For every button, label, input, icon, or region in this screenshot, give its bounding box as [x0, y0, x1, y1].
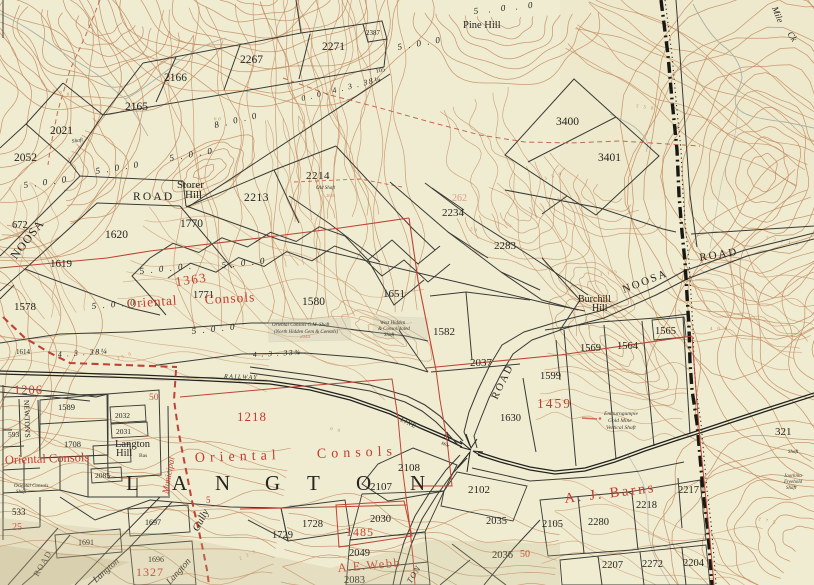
svg-text:1569: 1569	[580, 343, 601, 354]
svg-text:Consols: Consols	[317, 444, 398, 462]
svg-text:Hill: Hill	[185, 189, 202, 201]
svg-text:T: T	[307, 471, 320, 495]
svg-text:2283: 2283	[494, 240, 517, 252]
svg-text:1580: 1580	[302, 296, 325, 308]
svg-text:1729: 1729	[272, 530, 293, 541]
svg-text:Shaft: Shaft	[786, 486, 797, 491]
svg-text:1728: 1728	[302, 519, 323, 530]
svg-text:2271: 2271	[322, 41, 345, 53]
svg-text:2218: 2218	[636, 500, 657, 511]
svg-text:2234: 2234	[442, 207, 465, 219]
svg-text:2032: 2032	[115, 411, 130, 420]
svg-text:1619: 1619	[50, 258, 73, 270]
svg-text:1620: 1620	[105, 229, 128, 241]
svg-text:Bas: Bas	[139, 453, 147, 459]
svg-text:533: 533	[12, 507, 26, 517]
svg-text:262: 262	[452, 193, 467, 204]
svg-text:1564: 1564	[617, 341, 639, 352]
svg-text:& Consolidated: & Consolidated	[378, 327, 410, 332]
svg-text:2031: 2031	[116, 427, 131, 436]
svg-text:ROAD: ROAD	[133, 191, 174, 203]
svg-text:1459: 1459	[537, 396, 572, 411]
svg-text:2105: 2105	[542, 519, 563, 530]
svg-text:2030: 2030	[370, 514, 391, 525]
svg-text:1697: 1697	[145, 518, 161, 527]
svg-text:Shaft: Shaft	[788, 450, 799, 455]
svg-text:Pine Hill: Pine Hill	[463, 20, 501, 31]
svg-text:2085: 2085	[95, 471, 110, 480]
svg-text:Freehold: Freehold	[783, 480, 803, 485]
svg-text:O: O	[356, 471, 371, 495]
svg-text:1770: 1770	[180, 218, 203, 230]
svg-text:N: N	[215, 471, 230, 495]
svg-text:2052: 2052	[14, 152, 37, 164]
svg-text:Consols: Consols	[204, 289, 255, 307]
svg-text:2272: 2272	[642, 559, 663, 570]
svg-text:2049: 2049	[349, 548, 370, 559]
svg-text:RAILWAY: RAILWAY	[223, 374, 258, 381]
svg-text:1578: 1578	[14, 301, 37, 313]
svg-text:593: 593	[8, 430, 20, 439]
svg-text:2267: 2267	[240, 54, 263, 66]
svg-text:2207: 2207	[602, 560, 623, 571]
svg-text:1218: 1218	[237, 409, 267, 424]
svg-text:Oriental: Oriental	[195, 448, 281, 466]
svg-text:1206: 1206	[14, 383, 43, 397]
svg-text:2280: 2280	[588, 517, 609, 528]
svg-text:1565: 1565	[655, 326, 676, 337]
svg-text:Old Shaft: Old Shaft	[316, 186, 336, 191]
svg-text:A: A	[172, 471, 188, 495]
svg-text:1708: 1708	[64, 439, 81, 449]
svg-text:1582: 1582	[433, 326, 455, 338]
svg-text:5: 5	[206, 495, 211, 505]
svg-text:321: 321	[775, 426, 792, 438]
svg-text:1614: 1614	[16, 348, 31, 356]
svg-text:2045: 2045	[326, 193, 336, 198]
svg-text:West Hidden: West Hidden	[380, 321, 406, 326]
svg-text:2021: 2021	[50, 125, 73, 137]
svg-text:Oriental Consols G.M. Shaft: Oriental Consols G.M. Shaft	[272, 323, 330, 328]
svg-text:2213: 2213	[244, 192, 269, 204]
svg-text:NEWTON'S: NEWTON'S	[22, 400, 32, 438]
svg-text:Oriental Consols: Oriental Consols	[14, 484, 48, 489]
svg-text:Oriental Consols: Oriental Consols	[5, 450, 90, 467]
svg-text:1589: 1589	[58, 402, 75, 412]
svg-text:Emburngumpie: Emburngumpie	[603, 411, 638, 417]
svg-text:N: N	[410, 471, 425, 495]
svg-text:1651: 1651	[383, 288, 405, 300]
svg-text:Shaft: Shaft	[16, 490, 27, 495]
svg-text:3400: 3400	[556, 116, 579, 128]
svg-text:1485: 1485	[346, 525, 374, 539]
svg-text:2102: 2102	[468, 484, 490, 496]
svg-text:Gold Mine: Gold Mine	[608, 418, 632, 424]
svg-text:Shaft: Shaft	[384, 333, 395, 338]
svg-text:50: 50	[149, 393, 159, 403]
svg-text:2217: 2217	[678, 485, 699, 496]
svg-text:2387: 2387	[366, 29, 381, 37]
svg-text:2214: 2214	[306, 170, 330, 182]
svg-text:L: L	[126, 471, 139, 495]
svg-text:2204: 2204	[683, 558, 705, 569]
svg-text:1599: 1599	[540, 371, 561, 382]
svg-text:G: G	[265, 471, 280, 495]
svg-text:4 0 0: 4 0 0	[710, 325, 729, 331]
svg-text:Hill: Hill	[116, 448, 132, 459]
svg-text:2166: 2166	[164, 72, 187, 84]
svg-text:2107: 2107	[370, 481, 393, 493]
svg-text:Vertical Shaft: Vertical Shaft	[606, 424, 636, 431]
svg-text:2165: 2165	[125, 101, 148, 113]
svg-text:2035: 2035	[486, 516, 507, 527]
svg-text:2044: 2044	[300, 335, 311, 340]
svg-text:2037: 2037	[470, 357, 493, 369]
svg-text:1630: 1630	[500, 413, 521, 424]
svg-text:3401: 3401	[598, 152, 621, 164]
svg-text:Hill: Hill	[592, 303, 608, 314]
svg-text:Joorkina: Joorkina	[784, 474, 802, 479]
